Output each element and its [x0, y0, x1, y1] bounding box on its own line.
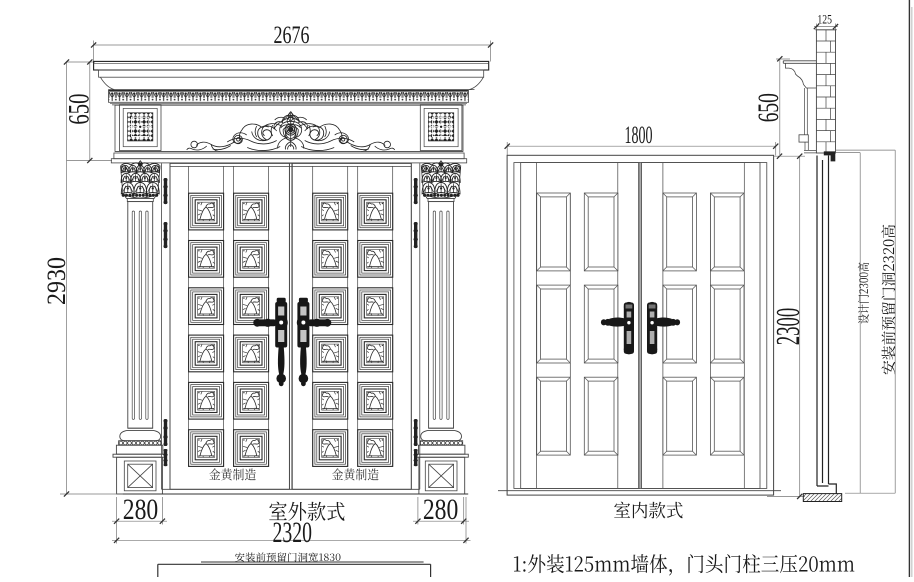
svg-text:2320: 2320	[273, 517, 313, 549]
svg-text:1800: 1800	[625, 122, 653, 149]
svg-text:650: 650	[63, 94, 95, 125]
svg-text:125: 125	[817, 12, 832, 26]
svg-text:650: 650	[753, 93, 785, 122]
svg-text:2300: 2300	[770, 308, 807, 346]
svg-text:2930: 2930	[41, 257, 71, 305]
svg-text:2676: 2676	[274, 22, 310, 49]
svg-text:280: 280	[423, 494, 459, 526]
svg-text:280: 280	[123, 494, 159, 526]
